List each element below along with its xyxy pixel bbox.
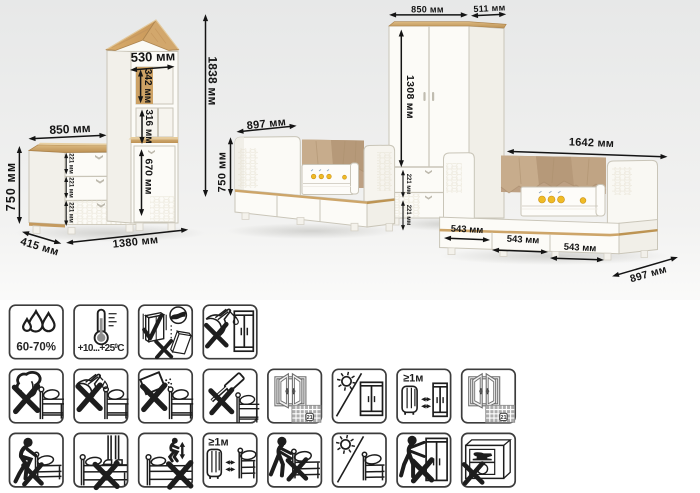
- svg-text:60-70%: 60-70%: [16, 342, 56, 354]
- svg-text:543 мм: 543 мм: [563, 242, 596, 255]
- svg-text:750 мм: 750 мм: [4, 162, 18, 211]
- svg-text:21: 21: [307, 415, 313, 421]
- svg-text:1642 мм: 1642 мм: [569, 136, 615, 150]
- svg-text:530 мм: 530 мм: [130, 48, 175, 65]
- svg-text:342 мм: 342 мм: [142, 69, 153, 103]
- svg-text:1308 мм: 1308 мм: [404, 75, 416, 119]
- svg-text:543 мм: 543 мм: [450, 223, 483, 236]
- svg-text:1838 мм: 1838 мм: [206, 56, 220, 105]
- svg-text:21: 21: [500, 415, 506, 421]
- svg-text:316 мм: 316 мм: [143, 109, 154, 143]
- svg-text:221 мм: 221 мм: [67, 177, 73, 198]
- svg-text:850 мм: 850 мм: [49, 121, 91, 137]
- svg-text:≥1м: ≥1м: [403, 372, 423, 384]
- svg-text:750 мм: 750 мм: [217, 152, 229, 193]
- svg-text:670 мм: 670 мм: [143, 159, 155, 195]
- svg-text:543 мм: 543 мм: [506, 234, 539, 247]
- svg-text:221 мм: 221 мм: [405, 205, 411, 226]
- svg-text:511 мм: 511 мм: [473, 2, 506, 14]
- svg-text:221 мм: 221 мм: [405, 174, 411, 195]
- svg-text:≥1м: ≥1м: [208, 436, 228, 448]
- svg-text:221 мм: 221 мм: [67, 202, 73, 223]
- svg-text:+10...+250С: +10...+250С: [78, 343, 125, 354]
- svg-text:221 мм: 221 мм: [67, 153, 73, 174]
- svg-text:850 мм: 850 мм: [411, 4, 444, 14]
